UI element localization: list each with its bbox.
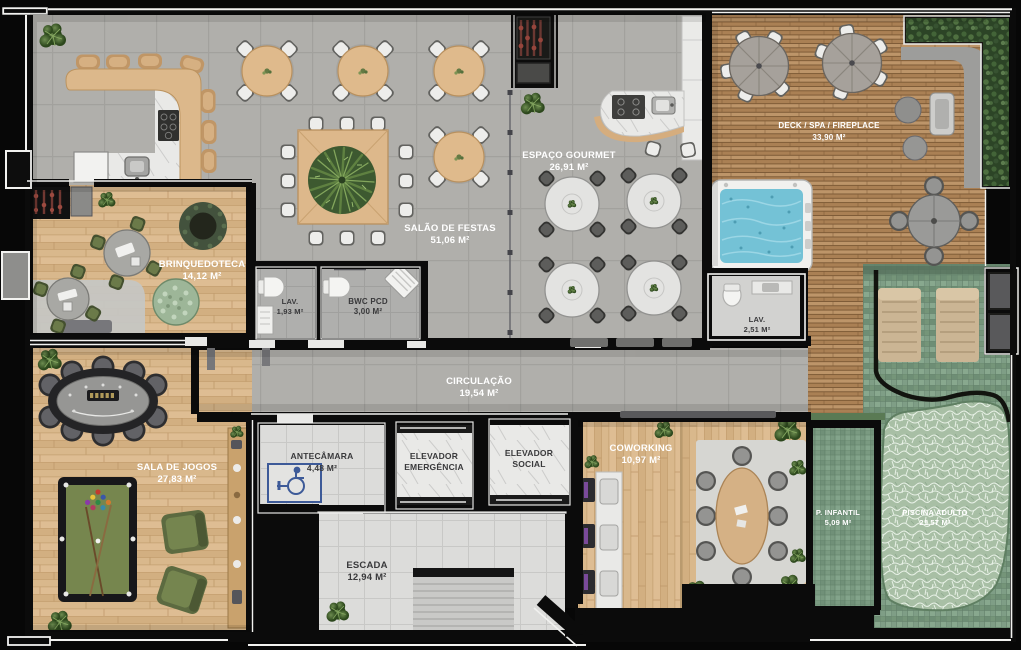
svg-text:SOCIAL: SOCIAL <box>512 459 545 469</box>
svg-text:27,83 M²: 27,83 M² <box>157 474 196 485</box>
svg-text:3,00 M²: 3,00 M² <box>354 307 383 316</box>
svg-text:LAV.: LAV. <box>749 315 766 324</box>
svg-text:2,51 M²: 2,51 M² <box>744 325 771 334</box>
svg-text:21,57 M²: 21,57 M² <box>919 518 950 527</box>
svg-text:LAV.: LAV. <box>282 297 299 306</box>
svg-text:4,48 M²: 4,48 M² <box>307 463 337 473</box>
svg-text:26,91 M²: 26,91 M² <box>549 162 588 173</box>
svg-text:CIRCULAÇÃO: CIRCULAÇÃO <box>446 376 512 387</box>
svg-text:COWORKING: COWORKING <box>609 443 672 454</box>
svg-text:5,09 M²: 5,09 M² <box>825 518 852 527</box>
svg-text:BRINQUEDOTECA: BRINQUEDOTECA <box>159 259 246 270</box>
svg-text:10,97 M²: 10,97 M² <box>621 455 660 466</box>
svg-text:P. INFANTIL: P. INFANTIL <box>816 508 860 517</box>
svg-text:51,06 M²: 51,06 M² <box>430 235 469 246</box>
svg-text:DECK / SPA / FIREPLACE: DECK / SPA / FIREPLACE <box>778 121 880 130</box>
svg-text:14,12 M²: 14,12 M² <box>182 271 221 282</box>
svg-text:BWC PCD: BWC PCD <box>348 297 388 306</box>
svg-text:PISCINA ADULTO: PISCINA ADULTO <box>902 508 967 517</box>
svg-text:ELEVADOR: ELEVADOR <box>505 448 553 458</box>
svg-text:SALÃO DE FESTAS: SALÃO DE FESTAS <box>404 223 496 234</box>
svg-text:12,94 M²: 12,94 M² <box>347 572 386 583</box>
svg-text:SALA DE JOGOS: SALA DE JOGOS <box>137 462 217 473</box>
svg-text:EMERGÊNCIA: EMERGÊNCIA <box>404 461 464 472</box>
svg-text:ELEVADOR: ELEVADOR <box>410 451 458 461</box>
svg-text:ANTECÂMARA: ANTECÂMARA <box>291 450 354 461</box>
svg-text:ESCADA: ESCADA <box>346 560 387 571</box>
svg-text:33,90 M²: 33,90 M² <box>812 133 845 142</box>
svg-text:1,93 M²: 1,93 M² <box>277 307 304 316</box>
svg-text:ESPAÇO GOURMET: ESPAÇO GOURMET <box>522 150 615 161</box>
svg-text:19,54 M²: 19,54 M² <box>459 388 498 399</box>
